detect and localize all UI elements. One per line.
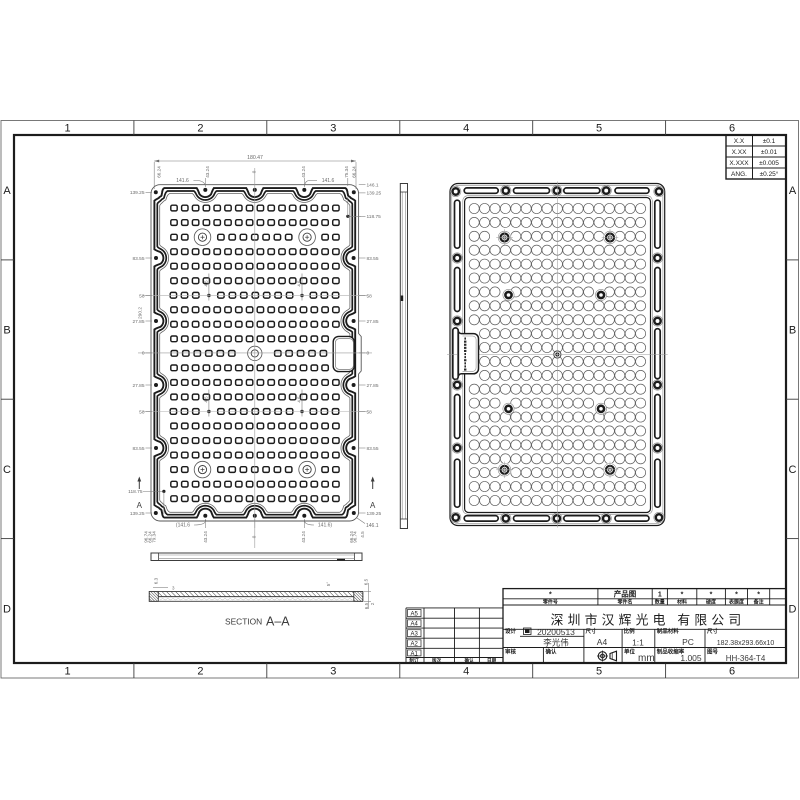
svg-text:硬度: 硬度 (706, 599, 717, 606)
svg-text:146.1: 146.1 (367, 182, 379, 188)
svg-text:确认: 确认 (546, 648, 558, 656)
svg-text:C: C (789, 464, 797, 476)
svg-text:6: 6 (729, 123, 735, 135)
svg-text:A–A: A–A (266, 615, 290, 629)
svg-text:A3: A3 (411, 632, 419, 638)
svg-text:0: 0 (251, 170, 256, 173)
svg-text:A: A (137, 501, 143, 510)
svg-text:备注: 备注 (753, 599, 764, 606)
svg-text:X.XX: X.XX (732, 149, 747, 156)
svg-text:A: A (370, 501, 376, 510)
svg-text:4.5: 4.5 (360, 531, 365, 538)
svg-text:0: 0 (367, 351, 370, 357)
svg-text:1.005: 1.005 (680, 653, 702, 663)
svg-text:58: 58 (139, 409, 145, 415)
svg-text:零件名: 零件名 (617, 599, 632, 606)
svg-text:产品图: 产品图 (614, 589, 637, 599)
svg-text:139.25: 139.25 (367, 191, 382, 197)
svg-text:58: 58 (367, 409, 373, 415)
svg-text:118.75: 118.75 (128, 489, 143, 495)
svg-text:5°: 5° (326, 582, 331, 587)
svg-text:尺寸: 尺寸 (586, 627, 598, 635)
svg-text:83.55: 83.55 (367, 256, 379, 262)
svg-text:SECTION: SECTION (225, 617, 262, 627)
svg-text:83.55: 83.55 (367, 446, 379, 452)
svg-text:制品材料: 制品材料 (657, 627, 680, 635)
svg-text:1: 1 (64, 666, 70, 678)
svg-text:290.2: 290.2 (138, 307, 144, 319)
svg-text:2: 2 (197, 123, 203, 135)
svg-text:设计: 设计 (505, 627, 517, 635)
svg-text:C: C (3, 464, 11, 476)
svg-text:4: 4 (463, 666, 469, 678)
svg-text:比例: 比例 (624, 627, 636, 635)
svg-text:1: 1 (64, 123, 70, 135)
svg-text:2: 2 (370, 602, 375, 605)
svg-text:6.5: 6.5 (363, 578, 368, 585)
svg-text:4.5: 4.5 (203, 280, 208, 287)
svg-text:A: A (789, 185, 797, 197)
svg-text:D: D (3, 603, 11, 615)
svg-text:180.47: 180.47 (247, 155, 263, 161)
svg-text:4.5: 4.5 (297, 280, 302, 287)
svg-text:79.34: 79.34 (151, 531, 156, 543)
svg-text:*: * (549, 592, 552, 599)
svg-text:A4: A4 (411, 622, 419, 628)
svg-text:HH-364-T4: HH-364-T4 (726, 654, 766, 663)
svg-text:B: B (3, 325, 10, 337)
svg-text:4.5: 4.5 (297, 396, 302, 403)
svg-text:182.38x293.66x10: 182.38x293.66x10 (717, 640, 775, 647)
svg-text:D: D (789, 603, 797, 615)
svg-text:2: 2 (197, 666, 203, 678)
svg-text:118.75: 118.75 (367, 214, 382, 220)
svg-text:6.3: 6.3 (154, 577, 159, 584)
svg-text:4: 4 (463, 123, 469, 135)
svg-text:75.34: 75.34 (344, 166, 349, 178)
svg-text:0: 0 (142, 351, 145, 357)
svg-text:141.6: 141.6 (176, 178, 189, 184)
svg-text:零件号: 零件号 (543, 599, 558, 606)
svg-text:A1: A1 (411, 651, 419, 657)
svg-text:ANG.: ANG. (731, 171, 747, 178)
svg-text:版次: 版次 (432, 657, 442, 664)
svg-text:141.6): 141.6) (318, 523, 333, 529)
svg-text:27.85: 27.85 (132, 383, 144, 389)
svg-text:深圳市汉辉光电 有限公司: 深圳市汉辉光电 有限公司 (551, 613, 746, 628)
svg-text:B: B (789, 325, 796, 337)
svg-text:A5: A5 (411, 611, 419, 617)
svg-text:141.6: 141.6 (322, 178, 335, 184)
svg-text:83.55: 83.55 (132, 446, 144, 452)
svg-text:±0.1: ±0.1 (763, 138, 776, 145)
svg-text:*: * (735, 592, 738, 599)
svg-text:3: 3 (330, 123, 336, 135)
svg-text:材料: 材料 (677, 599, 687, 606)
svg-text:确认: 确认 (464, 657, 474, 664)
svg-text:*: * (681, 592, 684, 599)
svg-text:X.X: X.X (734, 138, 745, 145)
svg-text:李光伟: 李光伟 (543, 638, 569, 648)
svg-text:43.24: 43.24 (205, 166, 210, 178)
svg-text:A4: A4 (597, 637, 608, 647)
svg-text:mm: mm (638, 653, 655, 664)
svg-text:(141.6: (141.6 (176, 523, 190, 529)
svg-text:±0.25°: ±0.25° (760, 170, 779, 178)
svg-text:X.XXX: X.XXX (729, 160, 749, 167)
svg-text:96.74: 96.74 (353, 531, 358, 543)
svg-text:表膜度: 表膜度 (728, 599, 745, 606)
svg-text:4.5: 4.5 (203, 396, 208, 403)
svg-text:单位: 单位 (624, 648, 636, 656)
svg-text:83.55: 83.55 (132, 256, 144, 262)
svg-text:±0.01: ±0.01 (761, 149, 778, 156)
svg-text:数量: 数量 (655, 599, 665, 606)
svg-text:27.85: 27.85 (367, 383, 379, 389)
svg-text:58: 58 (367, 293, 373, 299)
svg-text:0: 0 (251, 535, 256, 538)
svg-text:139.25: 139.25 (367, 511, 382, 517)
svg-text:66.24: 66.24 (157, 166, 162, 178)
svg-text:5: 5 (596, 666, 602, 678)
svg-text:66.24: 66.24 (352, 166, 357, 178)
svg-text:27.85: 27.85 (367, 319, 379, 325)
svg-text:审核: 审核 (505, 648, 517, 656)
svg-text:20200513: 20200513 (537, 627, 575, 637)
svg-text:43.24: 43.24 (301, 531, 306, 543)
svg-text:6.5: 6.5 (364, 602, 369, 609)
svg-text:*: * (757, 592, 760, 599)
svg-text:*: * (710, 592, 713, 599)
svg-text:43.24: 43.24 (301, 166, 306, 178)
svg-text:图号: 图号 (707, 648, 719, 656)
svg-text:6: 6 (729, 666, 735, 678)
svg-text:A2: A2 (411, 642, 419, 648)
svg-text:5: 5 (596, 123, 602, 135)
svg-text:3: 3 (330, 666, 336, 678)
svg-text:146.1: 146.1 (366, 523, 379, 529)
svg-text:139.25: 139.25 (130, 190, 145, 196)
svg-text:PC: PC (682, 637, 694, 647)
svg-text:1: 1 (658, 592, 662, 599)
svg-text:1:1: 1:1 (632, 638, 644, 648)
svg-text:A: A (3, 185, 11, 197)
svg-text:43.24: 43.24 (203, 531, 208, 543)
svg-text:139.25: 139.25 (130, 511, 145, 517)
svg-text:58: 58 (139, 293, 145, 299)
svg-text:尺寸: 尺寸 (707, 627, 719, 635)
svg-text:±0.005: ±0.005 (759, 160, 779, 167)
svg-text:制订: 制订 (409, 657, 419, 664)
svg-text:日期: 日期 (487, 657, 497, 664)
